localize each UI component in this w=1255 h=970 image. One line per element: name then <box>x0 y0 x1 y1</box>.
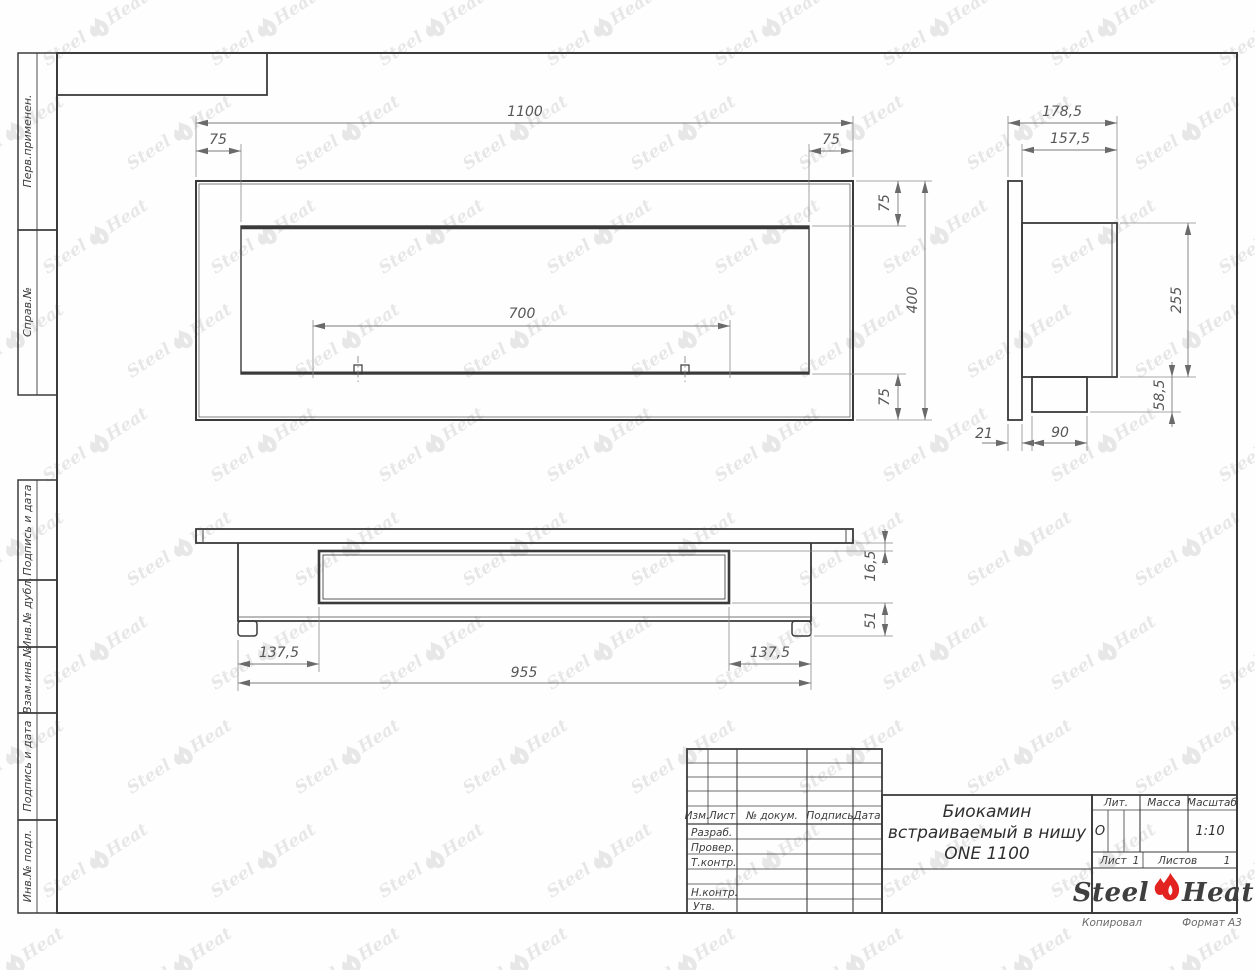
watermark-steel-text: Steel <box>39 651 91 694</box>
watermark-steel-text: Steel <box>795 339 847 382</box>
watermark-heat-text: Heat <box>18 924 68 966</box>
watermark: Steel Heat <box>375 404 488 487</box>
watermark: Steel Heat <box>1131 92 1244 175</box>
watermark: Steel Heat <box>627 716 740 799</box>
watermark-steel-text: Steel <box>375 651 427 694</box>
watermark-steel-text: Steel <box>1215 27 1255 70</box>
watermark: Steel Heat <box>1215 0 1255 71</box>
watermark-heat-text: Heat <box>1194 924 1244 966</box>
watermark: Steel Heat <box>459 924 572 970</box>
watermark-steel-text: Steel <box>459 131 511 174</box>
watermark-heat-text: Heat <box>858 508 908 550</box>
watermark: Steel Heat <box>627 924 740 970</box>
dim-plan-offset-left: 137,5 <box>259 645 299 661</box>
watermark-steel-text: Steel <box>459 963 511 970</box>
margin-label: Взам.инв.№ <box>21 646 34 714</box>
plan-foot-left <box>238 621 257 636</box>
watermark-heat-text: Heat <box>774 820 824 862</box>
watermark-heat-text: Heat <box>354 716 404 758</box>
watermark-steel-text: Steel <box>627 131 679 174</box>
drawing-canvas: Steel Heat Steel Heat Steel Heat Steel H… <box>0 0 1255 970</box>
watermark-steel-text: Steel <box>207 27 259 70</box>
watermark-heat-text: Heat <box>1026 300 1076 342</box>
watermark-heat-text: Heat <box>1110 612 1160 654</box>
margin-label: Инв.№ подл. <box>21 830 34 902</box>
watermark: Steel Heat <box>375 196 488 279</box>
watermark-steel-text: Steel <box>1047 27 1099 70</box>
watermark-steel-text: Steel <box>0 131 7 174</box>
col-list: Лист <box>708 810 736 822</box>
watermark: Steel Heat <box>0 300 68 383</box>
watermark: Steel Heat <box>879 0 992 71</box>
logo-flame-icon <box>1155 873 1179 900</box>
margin-box-inv-dubl: Инв.№ дубл. <box>18 577 57 649</box>
watermark: Steel Heat <box>291 924 404 970</box>
margin-label: Перв.применен. <box>21 94 34 187</box>
watermark-steel-text: Steel <box>1131 755 1183 798</box>
watermark: Steel Heat <box>711 0 824 71</box>
watermark-steel-text: Steel <box>1215 443 1255 486</box>
watermark-heat-text: Heat <box>942 196 992 238</box>
watermark-steel-text: Steel <box>1131 547 1183 590</box>
watermark-heat-text: Heat <box>438 612 488 654</box>
watermark: Steel Heat <box>459 508 572 591</box>
dim-plan-lip: 16,5 <box>863 550 879 581</box>
dim-side-depth-total: 178,5 <box>1042 104 1082 120</box>
watermark: Steel Heat <box>0 92 68 175</box>
watermark: Steel Heat <box>795 924 908 970</box>
watermark-steel-text: Steel <box>123 755 175 798</box>
dim-plan-body-width: 955 <box>511 665 538 681</box>
watermark-heat-text: Heat <box>690 924 740 966</box>
watermark-heat-text: Heat <box>270 404 320 446</box>
watermark-heat-text: Heat <box>270 820 320 862</box>
watermark-heat-text: Heat <box>1110 0 1160 30</box>
watermark: Steel Heat <box>795 300 908 383</box>
row-razrab: Разраб. <box>691 827 732 839</box>
watermark-steel-text: Steel <box>963 963 1015 970</box>
watermark-heat-text: Heat <box>102 196 152 238</box>
watermark-steel-text: Steel <box>375 443 427 486</box>
watermark: Steel Heat <box>375 820 488 903</box>
watermark-heat-text: Heat <box>102 820 152 862</box>
watermark-heat-text: Heat <box>606 0 656 30</box>
watermark-steel-text: Steel <box>963 131 1015 174</box>
watermark-heat-text: Heat <box>690 300 740 342</box>
watermark: Steel Heat <box>879 404 992 487</box>
watermark-steel-text: Steel <box>375 859 427 902</box>
watermark-heat-text: Heat <box>606 612 656 654</box>
watermark: Steel Heat <box>1131 924 1244 970</box>
watermark-steel-text: Steel <box>1131 131 1183 174</box>
watermark: Steel Heat <box>963 300 1076 383</box>
watermark: Steel Heat <box>123 716 236 799</box>
watermark-steel-text: Steel <box>207 651 259 694</box>
dim-side-body-height: 255 <box>1169 287 1185 314</box>
watermark-steel-text: Steel <box>0 339 7 382</box>
watermark-steel-text: Steel <box>963 755 1015 798</box>
logo-steel-text: Steel <box>1073 878 1149 908</box>
watermark-steel-text: Steel <box>879 27 931 70</box>
watermark: Steel Heat <box>795 92 908 175</box>
dim-front-inset-bottom: 75 <box>877 388 893 406</box>
watermark-heat-text: Heat <box>438 196 488 238</box>
watermark-steel-text: Steel <box>879 235 931 278</box>
watermark-steel-text: Steel <box>795 547 847 590</box>
watermark-steel-text: Steel <box>1215 235 1255 278</box>
watermark: Steel Heat <box>291 300 404 383</box>
watermark: Steel Heat <box>963 924 1076 970</box>
watermark-steel-text: Steel <box>291 755 343 798</box>
dim-front-total-width: 1100 <box>507 104 543 120</box>
watermark-heat-text: Heat <box>606 820 656 862</box>
side-flange <box>1008 181 1022 420</box>
engineering-drawing-sheet: Steel Heat Steel Heat Steel Heat Steel H… <box>0 0 1255 970</box>
watermark-steel-text: Steel <box>795 963 847 970</box>
watermark: Steel Heat <box>207 0 320 71</box>
watermark-heat-text: Heat <box>270 0 320 30</box>
mass-label: Масса <box>1147 797 1180 809</box>
watermark: Steel Heat <box>543 196 656 279</box>
watermark-steel-text: Steel <box>39 27 91 70</box>
watermark-steel-text: Steel <box>0 755 7 798</box>
watermark-heat-text: Heat <box>774 0 824 30</box>
watermark-steel-text: Steel <box>375 27 427 70</box>
row-prover: Провер. <box>691 842 735 854</box>
dim-side-depth-body: 157,5 <box>1050 131 1090 147</box>
sheet-value: 1 <box>1133 855 1140 867</box>
watermark-heat-text: Heat <box>186 300 236 342</box>
dim-front-inset-top: 75 <box>877 194 893 212</box>
watermark-heat-text: Heat <box>774 404 824 446</box>
col-data: Дата <box>852 810 880 822</box>
watermark-heat-text: Heat <box>438 0 488 30</box>
watermark-steel-text: Steel <box>879 443 931 486</box>
side-burner-box <box>1032 377 1087 412</box>
watermark-steel-text: Steel <box>879 859 931 902</box>
watermark: Steel Heat <box>0 924 68 970</box>
watermark-steel-text: Steel <box>963 547 1015 590</box>
dim-front-total-height: 400 <box>905 287 921 314</box>
watermark-steel-text: Steel <box>1131 963 1183 970</box>
watermark-heat-text: Heat <box>774 196 824 238</box>
watermark-steel-text: Steel <box>459 547 511 590</box>
row-utv: Утв. <box>693 901 715 913</box>
watermark-steel-text: Steel <box>207 859 259 902</box>
watermark: Steel Heat <box>207 404 320 487</box>
watermark-steel-text: Steel <box>0 963 7 970</box>
watermark-heat-text: Heat <box>438 820 488 862</box>
watermark-heat-text: Heat <box>942 0 992 30</box>
watermark: Steel Heat <box>1215 612 1255 695</box>
watermark-steel-text: Steel <box>207 235 259 278</box>
col-docnum: № докум. <box>745 810 798 822</box>
watermark: Steel Heat <box>0 508 68 591</box>
watermark-steel-text: Steel <box>711 27 763 70</box>
watermark-steel-text: Steel <box>627 547 679 590</box>
watermark-steel-text: Steel <box>711 235 763 278</box>
copied-label: Копировал <box>1082 917 1142 929</box>
watermark-steel-text: Steel <box>123 963 175 970</box>
watermark-heat-text: Heat <box>186 92 236 134</box>
watermark-steel-text: Steel <box>627 339 679 382</box>
watermark-steel-text: Steel <box>291 963 343 970</box>
watermark: Steel Heat <box>1047 612 1160 695</box>
watermark: Steel Heat <box>459 716 572 799</box>
doc-title-line1: Биокамин <box>943 802 1032 822</box>
doc-title-line2: встраиваемый в нишу <box>888 823 1087 843</box>
watermark-steel-text: Steel <box>375 235 427 278</box>
watermark-heat-text: Heat <box>438 404 488 446</box>
dim-front-inset-right: 75 <box>822 132 840 148</box>
watermark-steel-text: Steel <box>1047 443 1099 486</box>
dim-side-burner-depth: 90 <box>1051 425 1069 441</box>
watermark-steel-text: Steel <box>459 339 511 382</box>
watermark: Steel Heat <box>1215 196 1255 279</box>
watermark-steel-text: Steel <box>627 755 679 798</box>
watermark-steel-text: Steel <box>879 651 931 694</box>
watermark: Steel Heat <box>879 196 992 279</box>
watermark: Steel Heat <box>123 924 236 970</box>
watermark: Steel Heat <box>627 300 740 383</box>
watermark-heat-text: Heat <box>690 92 740 134</box>
watermark-steel-text: Steel <box>123 339 175 382</box>
watermark: Steel Heat <box>1047 0 1160 71</box>
watermark: Steel Heat <box>1131 716 1244 799</box>
watermark-heat-text: Heat <box>606 196 656 238</box>
sheets-label: Листов <box>1157 855 1197 867</box>
watermark-steel-text: Steel <box>1131 339 1183 382</box>
sheets-value: 1 <box>1224 855 1231 867</box>
watermark-steel-text: Steel <box>1215 651 1255 694</box>
watermark-heat-text: Heat <box>1026 716 1076 758</box>
watermark-steel-text: Steel <box>123 547 175 590</box>
watermark-steel-text: Steel <box>39 235 91 278</box>
watermark: Steel Heat <box>291 92 404 175</box>
watermark: Steel Heat <box>207 820 320 903</box>
watermark: Steel Heat <box>795 716 908 799</box>
watermark: Steel Heat <box>627 508 740 591</box>
scale-label: Масштаб <box>1187 797 1237 809</box>
watermark: Steel Heat <box>207 196 320 279</box>
dim-front-opening-width: 700 <box>509 306 536 322</box>
corner-reference-box <box>57 53 267 95</box>
watermark-heat-text: Heat <box>858 300 908 342</box>
watermark: Steel Heat <box>963 508 1076 591</box>
scale-value: 1:10 <box>1195 824 1224 839</box>
lit-label: Лит. <box>1103 797 1128 809</box>
doc-title-line3: ONE 1100 <box>944 844 1030 864</box>
watermark-heat-text: Heat <box>1026 924 1076 966</box>
watermark-steel-text: Steel <box>543 651 595 694</box>
margin-box-perv-primenen: Перв.применен. <box>18 53 57 230</box>
watermark: Steel Heat <box>879 612 992 695</box>
watermark-heat-text: Heat <box>942 612 992 654</box>
watermark-heat-text: Heat <box>522 924 572 966</box>
watermark-steel-text: Steel <box>627 963 679 970</box>
watermark-steel-text: Steel <box>1047 651 1099 694</box>
watermark-heat-text: Heat <box>102 0 152 30</box>
watermark-heat-text: Heat <box>186 716 236 758</box>
watermark-heat-text: Heat <box>186 924 236 966</box>
watermark-steel-text: Steel <box>543 859 595 902</box>
watermark-heat-text: Heat <box>690 716 740 758</box>
watermark: Steel Heat <box>795 508 908 591</box>
watermark: Steel Heat <box>963 716 1076 799</box>
watermark: Steel Heat <box>543 0 656 71</box>
watermark-steel-text: Steel <box>207 443 259 486</box>
col-podpis: Подпись <box>806 810 853 822</box>
watermark-steel-text: Steel <box>459 755 511 798</box>
watermark: Steel Heat <box>1131 508 1244 591</box>
watermark: Steel Heat <box>1047 404 1160 487</box>
watermark-heat-text: Heat <box>606 404 656 446</box>
watermark-steel-text: Steel <box>0 547 7 590</box>
watermark-steel-text: Steel <box>543 443 595 486</box>
dim-front-inset-left: 75 <box>209 132 227 148</box>
watermark-heat-text: Heat <box>1026 508 1076 550</box>
watermark-heat-text: Heat <box>270 196 320 238</box>
margin-label: Подпись и дата <box>21 484 34 575</box>
watermark: Steel Heat <box>543 820 656 903</box>
watermark-steel-text: Steel <box>39 859 91 902</box>
watermark: Steel Heat <box>291 716 404 799</box>
dim-plan-offset-right: 137,5 <box>750 645 790 661</box>
watermark: Steel Heat <box>291 508 404 591</box>
margin-label: Справ.№ <box>21 287 34 337</box>
dim-side-burner-height: 58,5 <box>1152 379 1168 410</box>
sheet-label: Лист <box>1099 855 1127 867</box>
steelheat-logo: Steel Heat <box>1073 873 1254 908</box>
watermark-heat-text: Heat <box>858 92 908 134</box>
watermark-steel-text: Steel <box>123 131 175 174</box>
dim-plan-foot-height: 51 <box>863 611 879 629</box>
watermark-heat-text: Heat <box>354 924 404 966</box>
watermark-heat-text: Heat <box>354 300 404 342</box>
watermark-steel-text: Steel <box>291 547 343 590</box>
margin-label: Подпись и дата <box>21 720 34 811</box>
watermark-steel-text: Steel <box>291 131 343 174</box>
row-nkontr: Н.контр. <box>691 887 738 899</box>
watermark: Steel Heat <box>1047 196 1160 279</box>
dim-side-flange-thickness: 21 <box>975 426 993 442</box>
row-tkontr: Т.контр. <box>691 857 737 869</box>
watermark-heat-text: Heat <box>102 404 152 446</box>
watermark: Steel Heat <box>1215 404 1255 487</box>
watermark-steel-text: Steel <box>1047 235 1099 278</box>
watermark: Steel Heat <box>711 196 824 279</box>
watermark: Steel Heat <box>627 92 740 175</box>
watermark: Steel Heat <box>543 404 656 487</box>
logo-heat-text: Heat <box>1181 878 1254 908</box>
watermark: Steel Heat <box>0 716 68 799</box>
margin-label: Инв.№ дубл. <box>21 577 34 649</box>
col-izm: Изм. <box>685 810 710 822</box>
watermark: Steel Heat <box>123 508 236 591</box>
watermark-steel-text: Steel <box>291 339 343 382</box>
watermark-heat-text: Heat <box>102 612 152 654</box>
watermark-heat-text: Heat <box>858 924 908 966</box>
lit-value: О <box>1095 824 1105 839</box>
side-body <box>1022 223 1117 377</box>
watermark-heat-text: Heat <box>522 716 572 758</box>
watermark-steel-text: Steel <box>543 27 595 70</box>
watermark-steel-text: Steel <box>543 235 595 278</box>
watermark: Steel Heat <box>375 0 488 71</box>
watermark: Steel Heat <box>123 300 236 383</box>
watermark-steel-text: Steel <box>711 443 763 486</box>
format-label: Формат А3 <box>1182 917 1242 929</box>
watermark: Steel Heat <box>711 404 824 487</box>
watermark-heat-text: Heat <box>354 92 404 134</box>
